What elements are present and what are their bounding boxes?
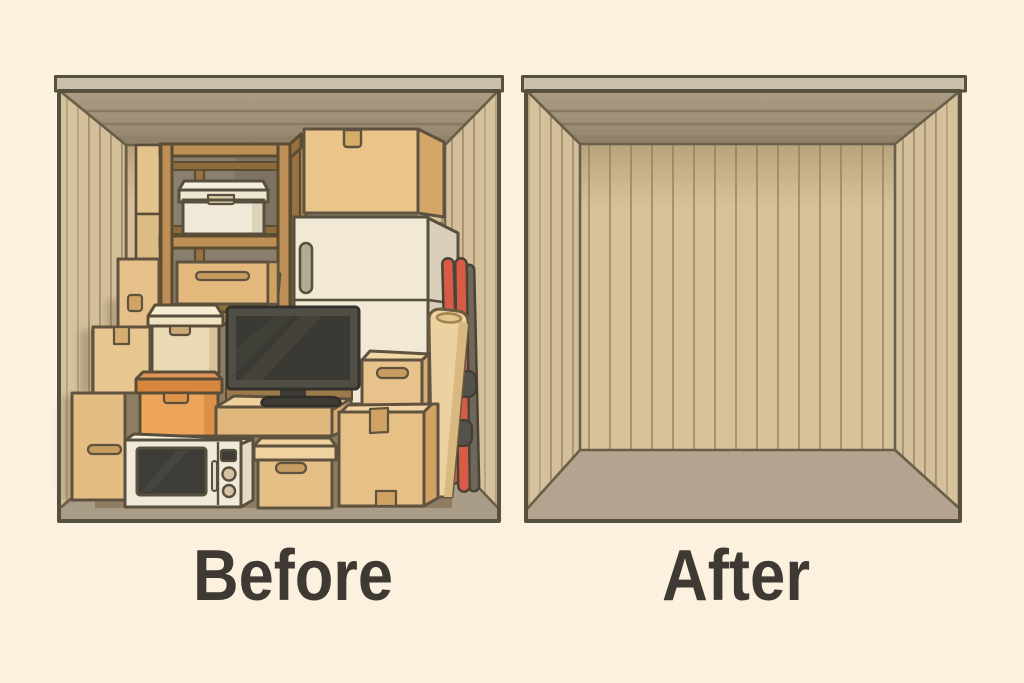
svg-text:Before: Before	[193, 536, 393, 616]
svg-text:After: After	[662, 536, 810, 616]
